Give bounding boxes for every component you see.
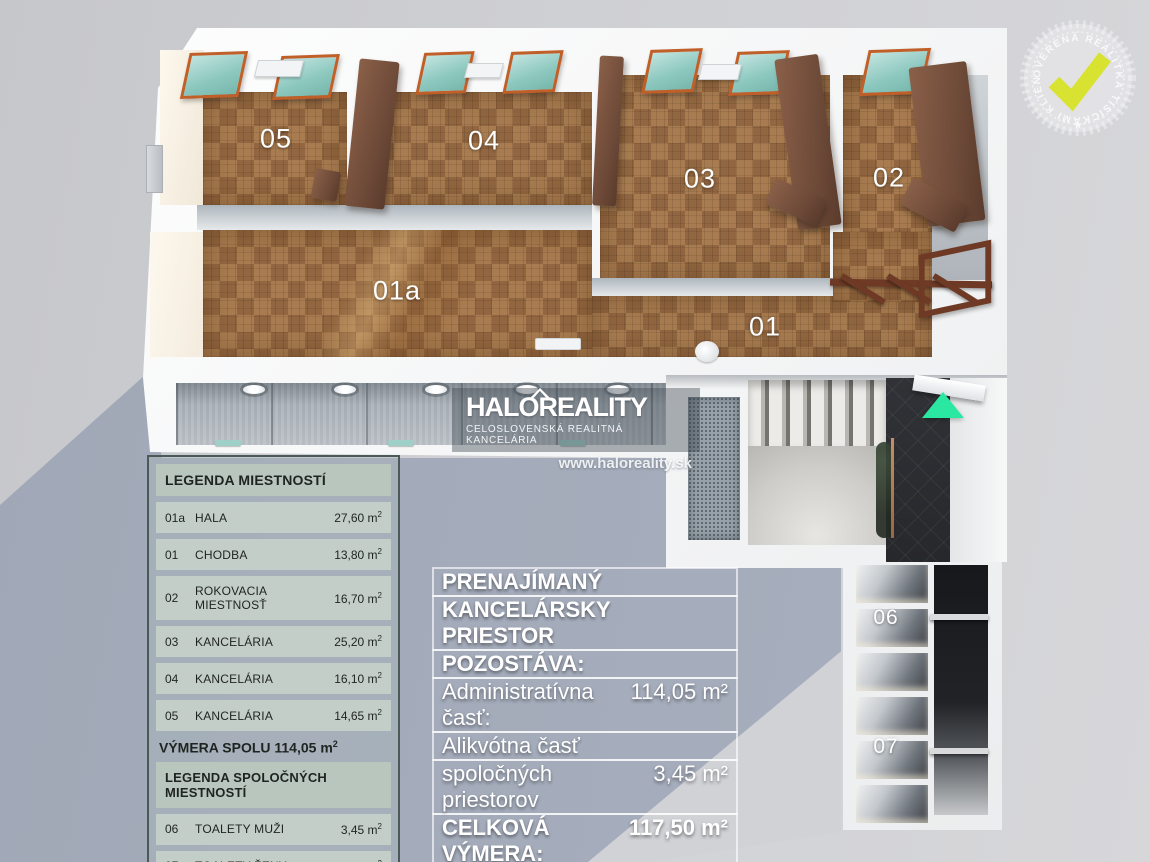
legend-room-no: 05: [165, 709, 195, 723]
summary-label: CELKOVÁ VÝMERA:: [442, 815, 629, 862]
verified-badge: OVERENÁ REALITKA TISÍCKAMI KLIENTOV ★: [1008, 8, 1148, 148]
legend-row: 06 TOALETY MUŽI 3,45 m2: [156, 814, 391, 845]
legend-row: 07 TOALETY ŽENY 3,45 m2: [156, 851, 391, 862]
legend-room-name: KANCELÁRIA: [195, 709, 334, 723]
legend-row: 04 KANCELÁRIA 16,10 m2: [156, 663, 391, 694]
room-label-05: 05: [260, 124, 292, 155]
legend-room-name: ROKOVACIA MIESTNOSŤ: [195, 584, 334, 612]
toilet-cell: [856, 653, 928, 691]
legend-room-area: 16,70 m2: [334, 591, 382, 606]
summary-label: spoločných priestorov: [442, 761, 653, 813]
legend-room-name: CHODBA: [195, 548, 334, 562]
room-label-03: 03: [684, 164, 716, 195]
legend-room-area: 25,20 m2: [334, 634, 382, 649]
legend-room-no: 01a: [165, 511, 195, 525]
sink: [695, 341, 719, 362]
room-label-02: 02: [873, 163, 905, 194]
legend-row: 05 KANCELÁRIA 14,65 m2: [156, 700, 391, 731]
legend-total: VÝMERA SPOLU 114,05 m2: [156, 731, 391, 762]
agency-logo-title: HALOREALITY: [466, 392, 688, 422]
legend-row: 03 KANCELÁRIA 25,20 m2: [156, 626, 391, 657]
summary-row: spoločných priestorov 3,45 m²: [432, 759, 738, 815]
legend-room-no: 03: [165, 635, 195, 649]
summary-value: 114,05 m²: [631, 679, 728, 731]
summary-row: POZOSTÁVA:: [432, 649, 738, 679]
glass-panel-base: [215, 440, 241, 446]
agency-logo: HALOREALITY CELOSLOVENSKÁ REALITNÁ KANCE…: [452, 388, 700, 452]
summary-label: POZOSTÁVA:: [442, 651, 585, 677]
legend-room-area: 3,45 m2: [341, 859, 382, 862]
legend-section-title: LEGENDA SPOLOČNÝCH MIESTNOSTÍ: [156, 762, 391, 808]
legend-room-area: 27,60 m2: [334, 510, 382, 525]
skylight-window: [180, 51, 248, 99]
summary-label: PRENAJÍMANÝ: [442, 569, 602, 595]
summary-row: CELKOVÁ VÝMERA: 117,50 m²: [432, 813, 738, 862]
badge-star-icon: ★: [1073, 118, 1084, 132]
summary-panel: PRENAJÍMANÝ KANCELÁRSKY PRIESTOR POZOSTÁ…: [432, 569, 738, 862]
toilet-cell: [856, 785, 928, 823]
toilet-corridor: [934, 565, 988, 815]
toilet-shelf: [930, 614, 988, 620]
website-url: www.haloreality.sk: [452, 455, 692, 472]
legend-room-no: 04: [165, 672, 195, 686]
legend-room-no: 01: [165, 548, 195, 562]
ceiling-vent: [698, 64, 742, 80]
copper-pipe: [891, 438, 894, 538]
skylight-window: [502, 50, 563, 94]
legend-room-name: HALA: [195, 511, 334, 525]
summary-row: Administratívna časť: 114,05 m²: [432, 677, 738, 733]
legend-room-no: 02: [165, 591, 195, 605]
summary-row: Alikvótna časť: [432, 731, 738, 761]
summary-value: 3,45 m²: [653, 761, 728, 813]
ceiling-spotlight: [334, 385, 356, 394]
room-label-04: 04: [468, 126, 500, 157]
summary-label: Alikvótna časť: [442, 733, 580, 759]
legend-section-title: LEGENDA MIESTNOSTÍ: [156, 464, 391, 496]
staircase-steps: [748, 380, 886, 446]
corridor-01-north-wall: [592, 278, 833, 296]
summary-row: KANCELÁRSKY PRIESTOR: [432, 595, 738, 651]
skylight-window: [641, 48, 703, 94]
room-label-01: 01: [749, 312, 781, 343]
room-label-01a: 01a: [373, 276, 421, 307]
toilet-cell: [856, 697, 928, 735]
room-label-06: 06: [873, 606, 898, 630]
summary-row: PRENAJÍMANÝ: [432, 567, 738, 597]
radiator: [535, 338, 581, 350]
agency-logo-subtitle: CELOSLOVENSKÁ REALITNÁ KANCELÁRIA: [466, 424, 688, 446]
legend-room-name: KANCELÁRIA: [195, 635, 334, 649]
ceiling-vent: [464, 63, 504, 78]
legend-room-area: 14,65 m2: [334, 708, 382, 723]
legend-room-name: TOALETY MUŽI: [195, 822, 341, 836]
legend-room-area: 13,80 m2: [334, 547, 382, 562]
legend-row: 01a HALA 27,60 m2: [156, 502, 391, 533]
ceiling-spotlight: [425, 385, 447, 394]
floorplan-render: 05 04 03 02 01a 01 06 07 HALOREALITY CEL…: [0, 0, 1150, 862]
legend-row: 02 ROKOVACIA MIESTNOSŤ 16,70 m2: [156, 576, 391, 620]
summary-label: Administratívna časť:: [442, 679, 631, 731]
hall-01a-north-wall: [197, 205, 592, 230]
toilet-shelf: [930, 748, 988, 754]
cabinet: [311, 168, 342, 202]
legend-room-name: KANCELÁRIA: [195, 672, 334, 686]
ceiling-spotlight: [243, 385, 265, 394]
hall-01a-west-wall: [150, 232, 204, 357]
legend-row: 01 CHODBA 13,80 m2: [156, 539, 391, 570]
legend-room-area: 16,10 m2: [334, 671, 382, 686]
summary-label: KANCELÁRSKY PRIESTOR: [442, 597, 728, 649]
toilet-cell: [856, 565, 928, 603]
wall-ac-unit: [146, 145, 163, 193]
legend-room-no: 06: [165, 822, 195, 836]
ceiling-vent: [254, 60, 304, 77]
room-label-07: 07: [873, 735, 898, 759]
legend-panel: LEGENDA MIESTNOSTÍ 01a HALA 27,60 m2 01 …: [147, 455, 400, 862]
summary-value: 117,50 m²: [629, 815, 728, 862]
glass-panel-base: [388, 440, 414, 446]
entrance-arrow-icon: [922, 392, 964, 418]
legend-room-area: 3,45 m2: [341, 822, 382, 837]
decor-plant: [876, 442, 892, 538]
staircase-landing: [748, 446, 886, 545]
